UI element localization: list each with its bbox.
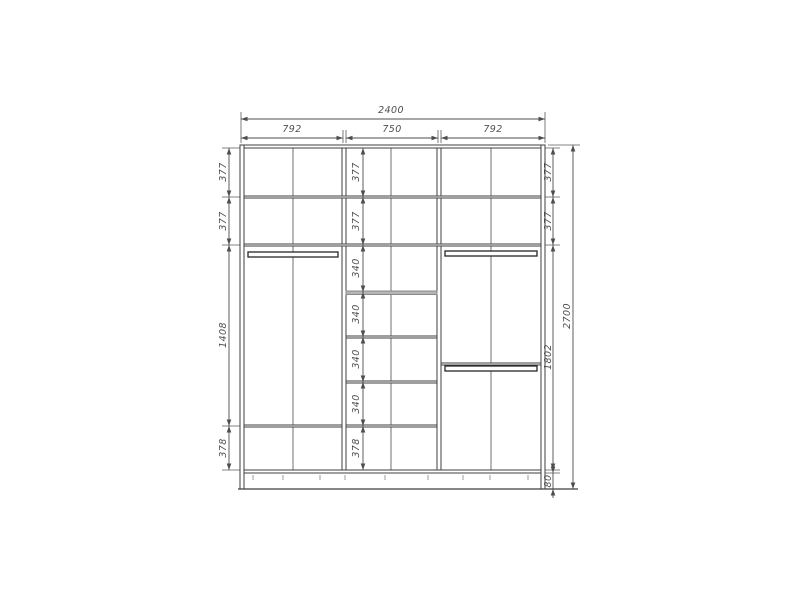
- dimension-label: 378: [351, 438, 362, 457]
- shelf-panel: [244, 196, 541, 198]
- dimension-arrow: [227, 420, 232, 427]
- dimension-arrow: [227, 191, 232, 198]
- hanger-rod-right-lower: [445, 366, 537, 371]
- dimension-arrow: [539, 117, 546, 122]
- dimension-label: 340: [351, 304, 362, 323]
- dimension-label: 792: [483, 124, 502, 135]
- dimension-arrow: [227, 426, 232, 433]
- drawing-canvas: 2400792750792377377140837837737734034034…: [0, 0, 800, 600]
- dimension-label: 792: [282, 124, 301, 135]
- dimension-arrow: [346, 136, 353, 141]
- dimension-arrow: [241, 117, 248, 122]
- shelf-panel: [244, 425, 342, 427]
- wardrobe-technical-drawing: 2400792750792377377140837837737734034034…: [0, 0, 800, 600]
- right-side-panel: [541, 145, 545, 489]
- dimension-arrow: [227, 197, 232, 204]
- dimension-arrow: [551, 489, 556, 496]
- bottom-panel: [244, 470, 541, 473]
- dimension-label: 340: [351, 394, 362, 413]
- dimension-label: 340: [351, 258, 362, 277]
- shelf-panel: [346, 425, 437, 427]
- dimension-label: 377: [543, 162, 554, 181]
- dimension-arrow: [571, 483, 576, 490]
- dimension-label: 2700: [562, 303, 573, 329]
- dimension-arrow: [241, 136, 248, 141]
- dimension-arrow: [551, 197, 556, 204]
- dimension-arrow: [551, 245, 556, 252]
- dimension-arrow: [551, 191, 556, 198]
- dimension-arrow: [337, 136, 344, 141]
- dimension-arrow: [539, 136, 546, 141]
- dimension-arrow: [551, 148, 556, 155]
- shelf-panel: [346, 336, 437, 338]
- dimension-label: 340: [351, 349, 362, 368]
- dimension-label: 750: [382, 124, 401, 135]
- dimension-label: 377: [218, 211, 229, 230]
- dimension-label: 377: [351, 211, 362, 230]
- hanger-rod-right-upper: [445, 251, 537, 256]
- dimension-label: 2400: [378, 105, 404, 116]
- shelf-panel-gray: [346, 291, 437, 295]
- dimension-arrow: [227, 464, 232, 471]
- dimension-label: 377: [351, 162, 362, 181]
- top-panel: [240, 145, 545, 148]
- shelf-panel: [441, 363, 541, 365]
- dimension-arrow: [441, 136, 448, 141]
- dimension-arrow: [432, 136, 439, 141]
- shelf-panel: [244, 244, 541, 246]
- dimension-arrow: [227, 245, 232, 252]
- dimension-label: 1802: [543, 344, 554, 370]
- dimension-label: 80: [543, 475, 554, 488]
- dimension-arrow: [361, 148, 366, 155]
- left-side-panel: [240, 145, 244, 489]
- dimension-arrow: [227, 148, 232, 155]
- dimension-label: 377: [543, 211, 554, 230]
- dimension-arrow: [227, 239, 232, 246]
- shelf-panel: [346, 381, 437, 383]
- dimension-label: 1408: [218, 322, 229, 348]
- dimension-label: 378: [218, 438, 229, 457]
- dimension-arrow: [361, 464, 366, 471]
- dimension-arrow: [551, 239, 556, 246]
- hanger-rod-left: [248, 252, 338, 257]
- dimension-label: 377: [218, 162, 229, 181]
- dimension-arrow: [571, 145, 576, 152]
